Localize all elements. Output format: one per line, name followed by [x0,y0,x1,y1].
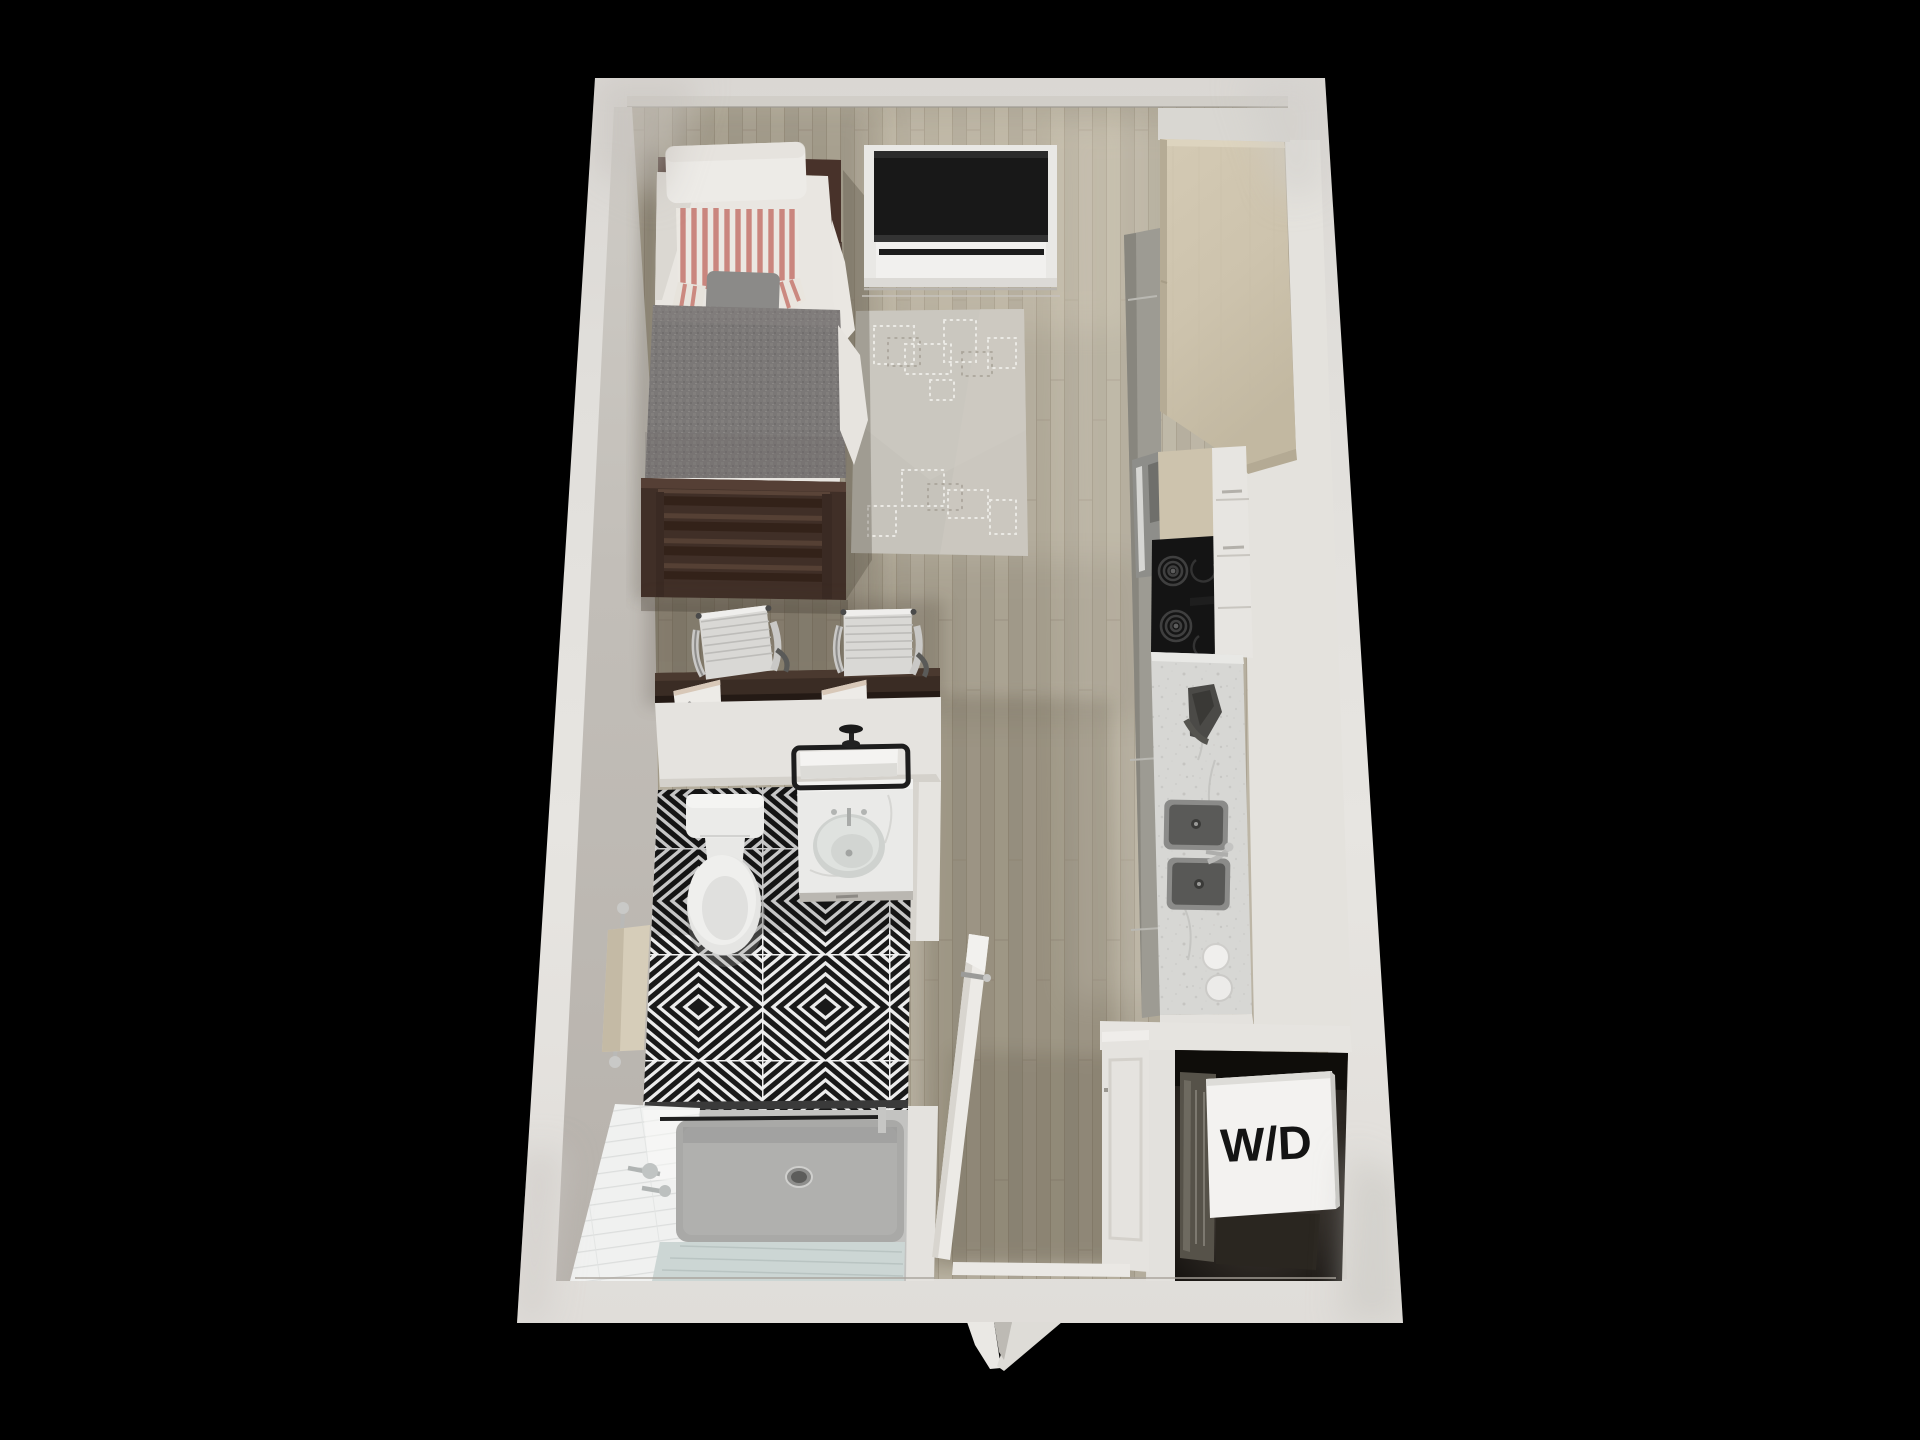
svg-text:W/D: W/D [1219,1115,1313,1172]
